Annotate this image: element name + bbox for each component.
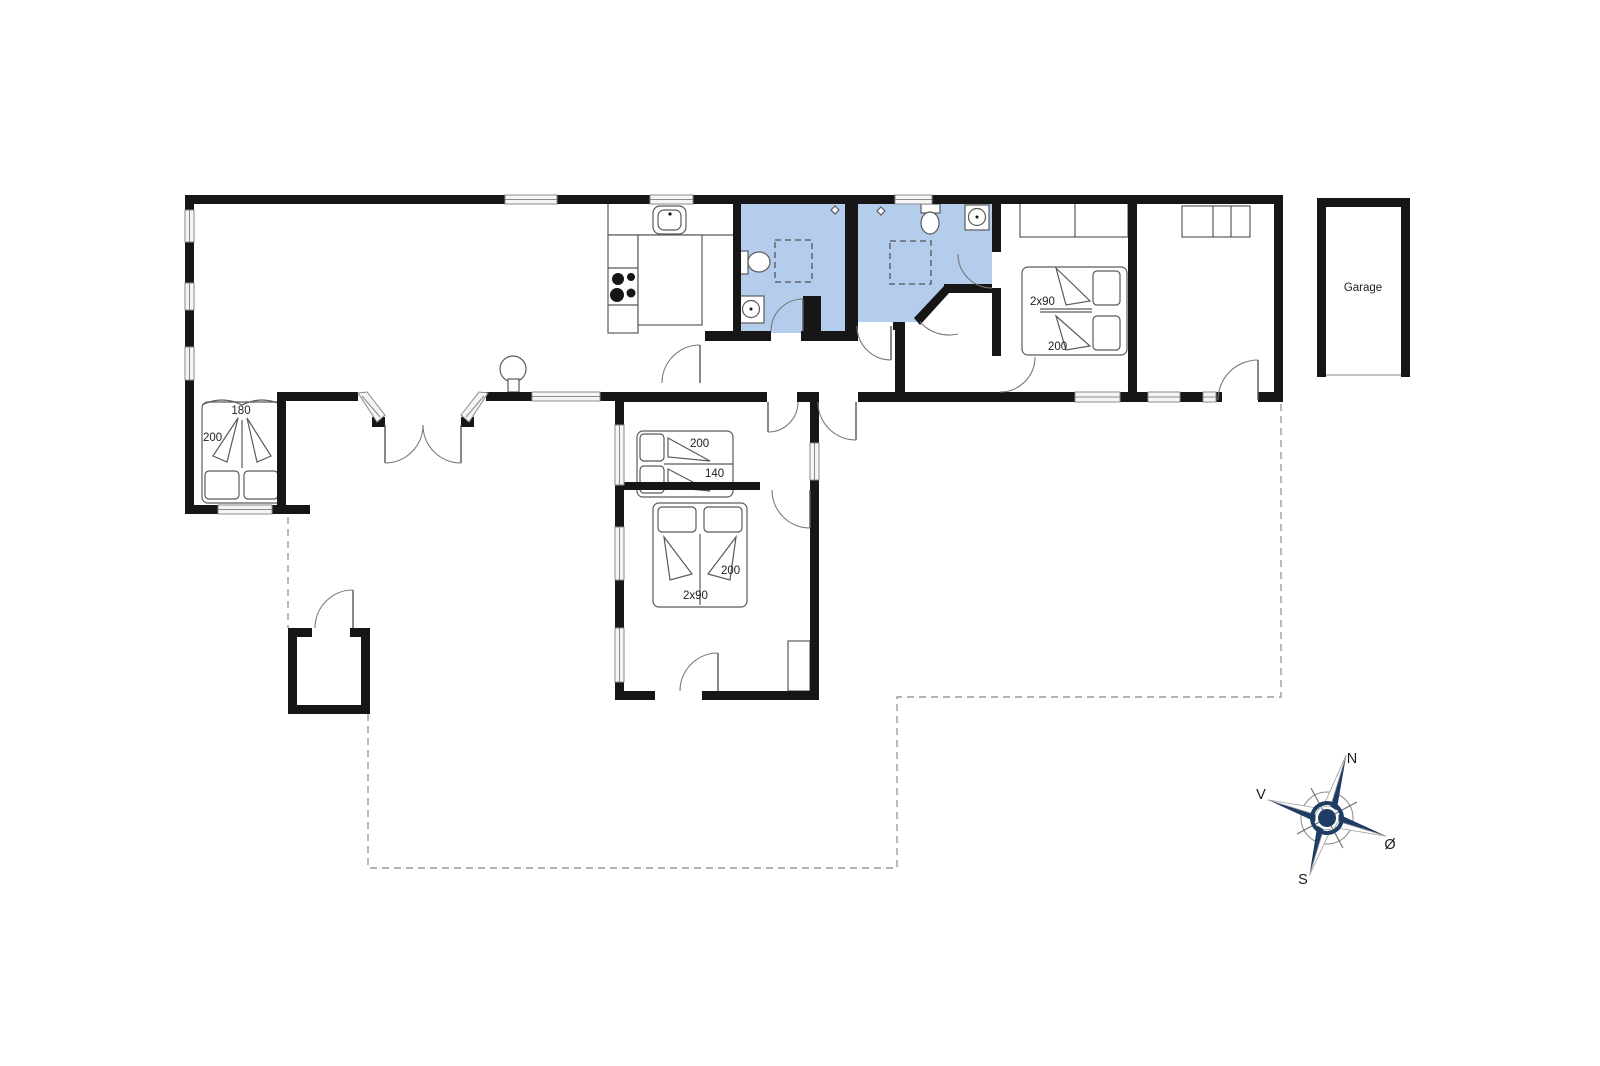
middle-bedroom-door — [768, 402, 798, 432]
niche-door — [920, 322, 958, 335]
sink-icon — [739, 296, 764, 323]
compass-east-label: Ø — [1384, 837, 1395, 853]
kitchen-cabinet-column — [608, 235, 638, 333]
south-bed-length: 200 — [721, 565, 740, 577]
kitchen-island — [638, 235, 702, 325]
south-bed-type: 2x90 — [683, 590, 708, 602]
floor-plan-canvas: Garage 180 200 200 140 200 2x90 2x90 200 — [0, 0, 1600, 1066]
pillow-icon — [640, 434, 664, 461]
terrace-outline — [288, 403, 1281, 868]
recess — [788, 641, 810, 691]
toilet-icon — [739, 251, 770, 274]
pillow-icon — [205, 471, 239, 499]
middle-bed-width: 140 — [705, 468, 724, 480]
pillow-icon — [658, 507, 696, 532]
pillow-icon — [1093, 316, 1120, 350]
kitchen — [608, 204, 733, 333]
east-bed-type: 2x90 — [1030, 296, 1055, 308]
sink-icon — [965, 205, 989, 230]
closet — [1020, 203, 1128, 237]
bathroom-2-door — [857, 326, 891, 360]
bed-east-bedroom — [1020, 203, 1128, 355]
outbuilding-door — [315, 590, 353, 628]
middle-bed-length: 200 — [690, 438, 709, 450]
bedroom-connecting-door — [772, 490, 810, 528]
toilet-icon — [921, 204, 940, 234]
garage-label: Garage — [1344, 282, 1382, 294]
alcove-bed-width: 180 — [231, 405, 250, 417]
hall-door — [662, 345, 700, 383]
east-bed-length: 200 — [1048, 341, 1067, 353]
pillow-icon — [244, 471, 278, 499]
pillow-icon — [1093, 271, 1120, 305]
east-bedroom-door — [1000, 357, 1035, 392]
compass-rose-icon: N V S Ø — [1250, 737, 1405, 894]
alcove-bed-length: 200 — [203, 432, 222, 444]
compass-south-label: S — [1298, 872, 1308, 888]
wood-stove-icon — [500, 356, 526, 392]
pillow-icon — [704, 507, 742, 532]
dimension-labels: 180 200 200 140 200 2x90 2x90 200 — [203, 296, 1067, 602]
terrace-door — [818, 402, 856, 440]
compass-west-label: V — [1256, 787, 1266, 803]
entrance-double-door — [385, 425, 461, 463]
closet — [1182, 206, 1250, 237]
kitchen-sink-icon — [653, 206, 686, 234]
garage: Garage — [1317, 198, 1410, 377]
south-bedroom-door — [680, 653, 718, 691]
east-room-door — [1218, 360, 1258, 400]
compass-north-label: N — [1347, 751, 1357, 767]
